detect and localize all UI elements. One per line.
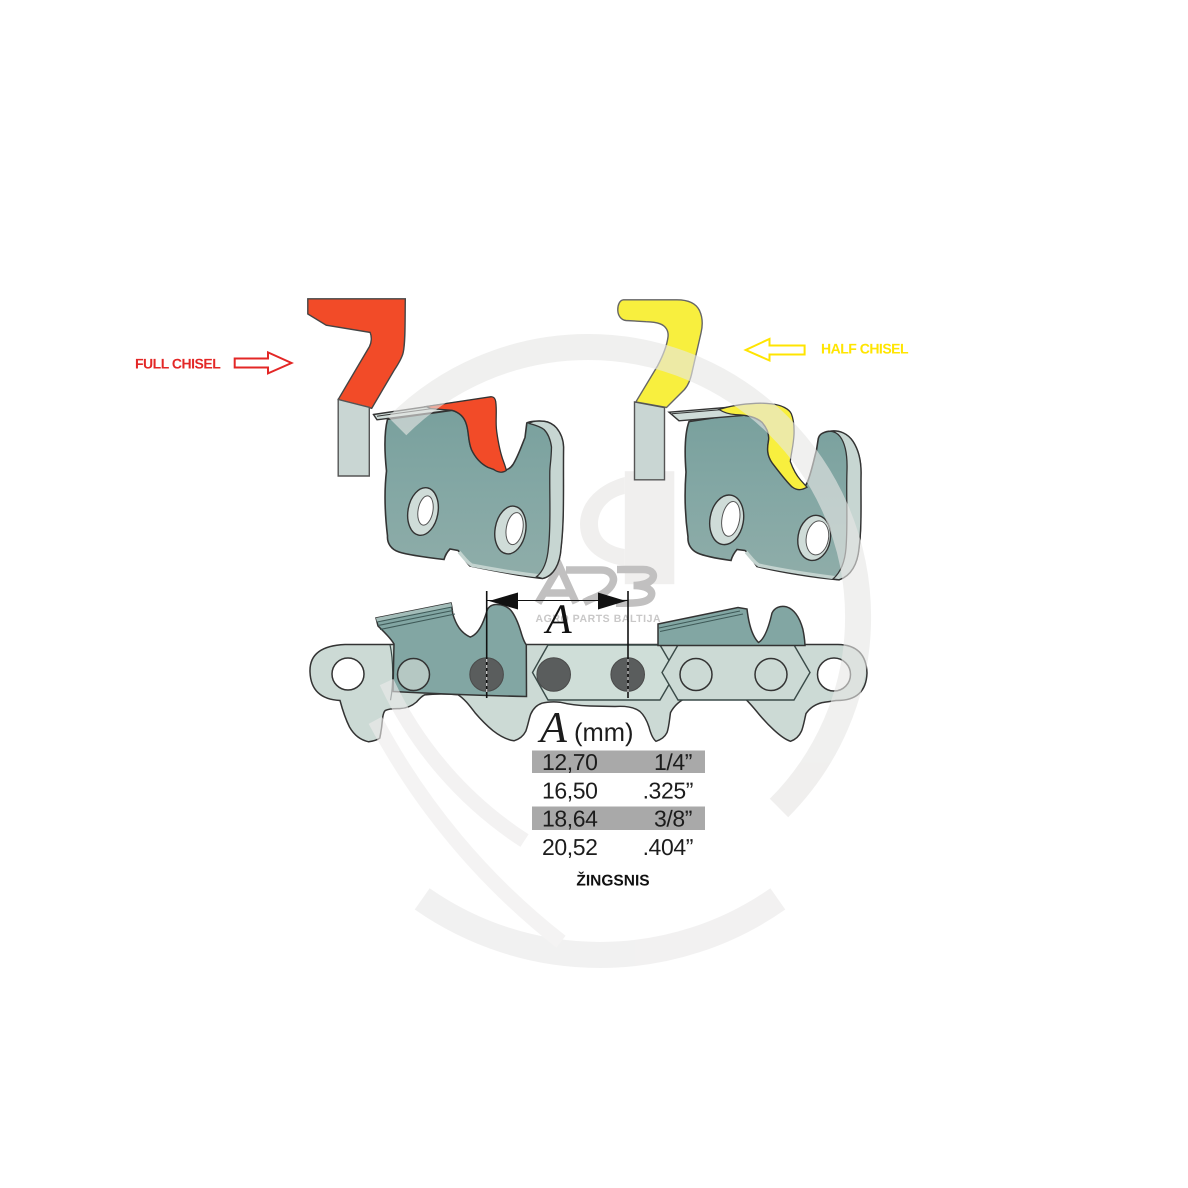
- svg-text:A: A: [537, 703, 568, 752]
- svg-text:FULL CHISEL: FULL CHISEL: [135, 356, 221, 372]
- svg-text:HALF CHISEL: HALF CHISEL: [821, 341, 909, 357]
- svg-text:ŽINGSNIS: ŽINGSNIS: [576, 872, 649, 890]
- svg-text:(mm): (mm): [574, 719, 633, 747]
- svg-text:A: A: [543, 597, 572, 643]
- svg-text:18,64: 18,64: [542, 806, 598, 832]
- svg-text:.325”: .325”: [643, 778, 693, 804]
- svg-text:16,50: 16,50: [542, 778, 598, 804]
- svg-text:12,70: 12,70: [542, 749, 598, 775]
- svg-text:1/4”: 1/4”: [654, 749, 692, 775]
- svg-text:3/8”: 3/8”: [654, 806, 692, 832]
- svg-text:.404”: .404”: [643, 834, 693, 860]
- svg-text:20,52: 20,52: [542, 834, 598, 860]
